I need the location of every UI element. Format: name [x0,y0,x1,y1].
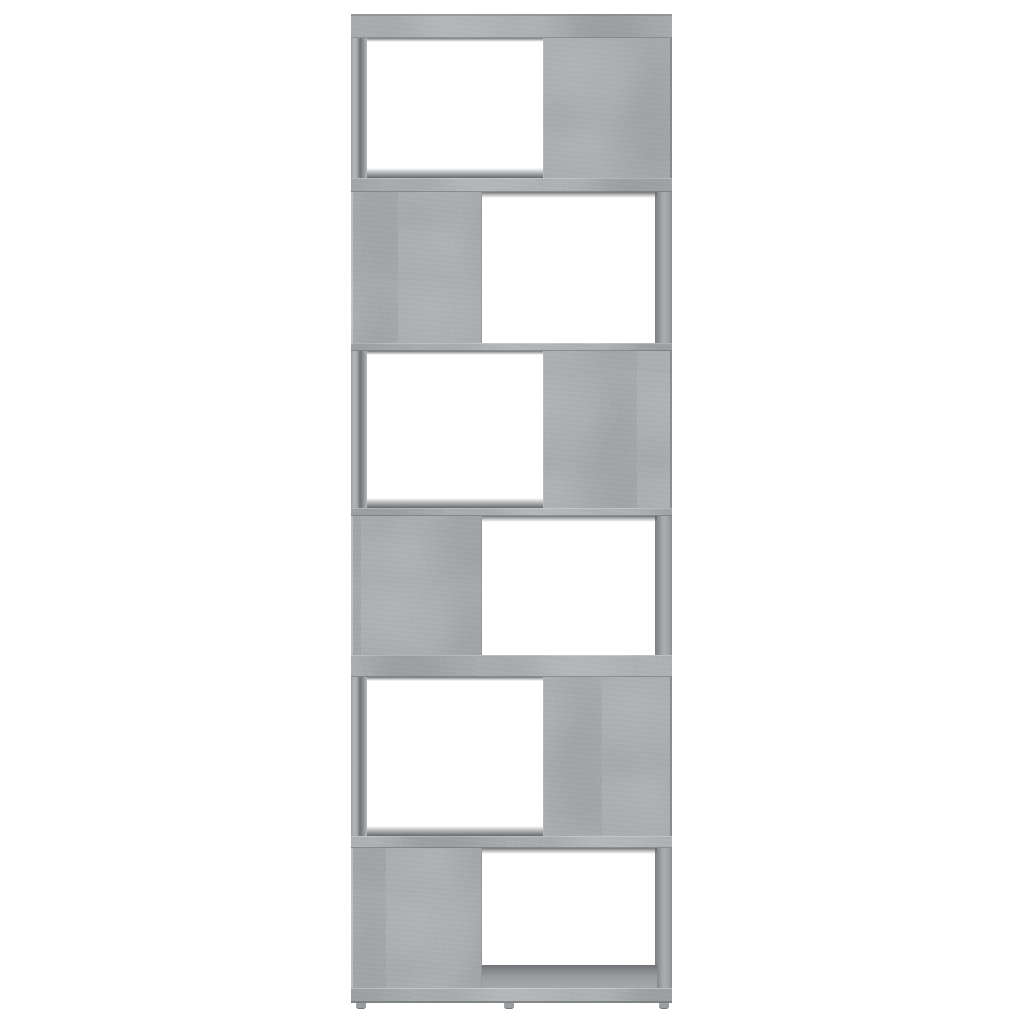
tier-5-opening-top-shadow [367,677,543,681]
tier-6-right-frame [655,848,672,988]
tier-1-front-panel [543,38,672,178]
tier-1-left-frame [351,38,367,178]
tier-3-opening-bottom-shadow [367,498,543,508]
shelf-edge-band-6 [351,836,672,848]
tier-3-front-panel [543,351,672,508]
tier-5-opening-bottom-shadow [367,826,543,836]
tier-4-opening [482,521,655,655]
bottom-shelf-interior [482,965,657,988]
shelf-edge-band-3 [351,343,672,351]
foot-right [659,1003,669,1009]
tier-2-front-panel [351,192,482,343]
product-photo-canvas [0,0,1024,1024]
foot-center [504,1003,514,1009]
tier-1-opening-bottom-shadow [367,168,543,178]
tier-5-opening [367,677,543,826]
tier-4-right-frame [655,516,672,655]
shelf-edge-band-5 [351,655,672,677]
tier-3-opening-top-shadow [367,351,543,355]
tier-6-opening [482,853,655,965]
tier-6-front-panel [351,848,482,988]
bookcase-room-divider [0,0,1024,1024]
tier-2-opening-top-shadow [482,192,657,198]
tier-1-opening [367,38,543,168]
tier-3-opening [367,351,543,498]
foot-left [356,1003,366,1009]
shelf-edge-band-2 [351,178,672,192]
shelf-edge-band-1 [351,14,672,38]
tier-1-opening-top-shadow [367,38,543,42]
tier-5-front-panel [543,677,672,836]
tier-3-left-frame [351,351,367,508]
tier-4-front-panel [351,516,482,655]
tier-2-right-frame [655,192,672,343]
tier-2-opening [482,197,655,343]
tier-4-opening-top-shadow [482,516,657,522]
tier-6-opening-top-shadow [482,848,657,854]
shelf-edge-band-4 [351,508,672,516]
bottom-plinth [351,988,672,1003]
tier-5-left-frame [351,677,367,836]
